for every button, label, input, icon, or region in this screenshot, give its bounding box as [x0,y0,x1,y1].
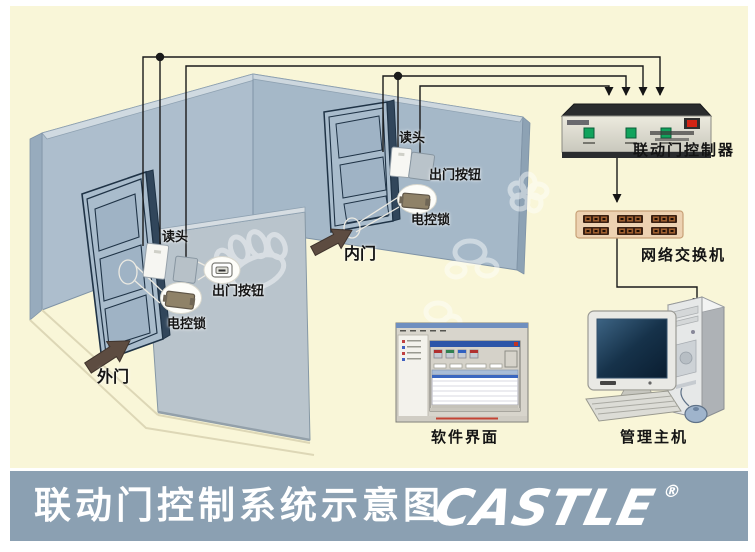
controller-label-text-mark [650,131,694,135]
inner-exit-button-label: 出门按钮 [429,164,481,183]
inner-lock-label: 电控锁 [411,209,450,228]
outer-door-label: 外门 [97,363,129,387]
outer-lock-label: 电控锁 [167,313,206,332]
computer-keyboard [586,391,681,421]
inner-reader-label: 读头 [399,127,425,146]
controller-power-switch-red [684,118,700,129]
software-selected-row [432,375,518,378]
outer-electric-lock [161,283,202,314]
scene-drawing [0,0,755,470]
castle-logo: CASTLE® [430,479,685,537]
software-list-area [432,375,518,405]
inner-door-label: 内门 [344,240,376,264]
software-titlebar [396,323,528,328]
network-switch-label: 网络交换机 [641,244,726,265]
diagram-title: 联动门控制系统示意图 [34,471,444,541]
registered-trademark-icon: ® [661,482,684,502]
schematic-poster: 读头 出门按钮 电控锁 外门 读头 出门按钮 电控锁 内门 联动门控制器 网络交… [0,0,755,552]
outer-reader-label: 读头 [162,226,188,245]
title-banner: 联动门控制系统示意图 CASTLE® [10,471,748,541]
wire-junction-dot [394,72,402,80]
software-close-icon [514,342,518,346]
inner-door [324,100,400,232]
management-host-label: 管理主机 [620,426,688,447]
controller-label: 联动门控制器 [633,139,735,160]
software-window [396,323,528,422]
management-computer [586,297,724,423]
outer-card-reader [143,243,169,279]
controller-brand-mark [567,120,589,125]
software-side-button [505,351,517,367]
software-dialog-titlebar [430,341,520,347]
software-list-header [432,370,518,375]
castle-logo-text: CASTLE [430,479,661,537]
network-switch-device [576,211,683,238]
software-status-red-text-mark [436,418,498,420]
wire-junction-dot [156,53,164,61]
outer-exit-button-label: 出门按钮 [212,280,264,299]
software-field-row [434,364,502,368]
software-ui-label: 软件界面 [431,426,499,447]
outer-exit-button [173,256,198,283]
